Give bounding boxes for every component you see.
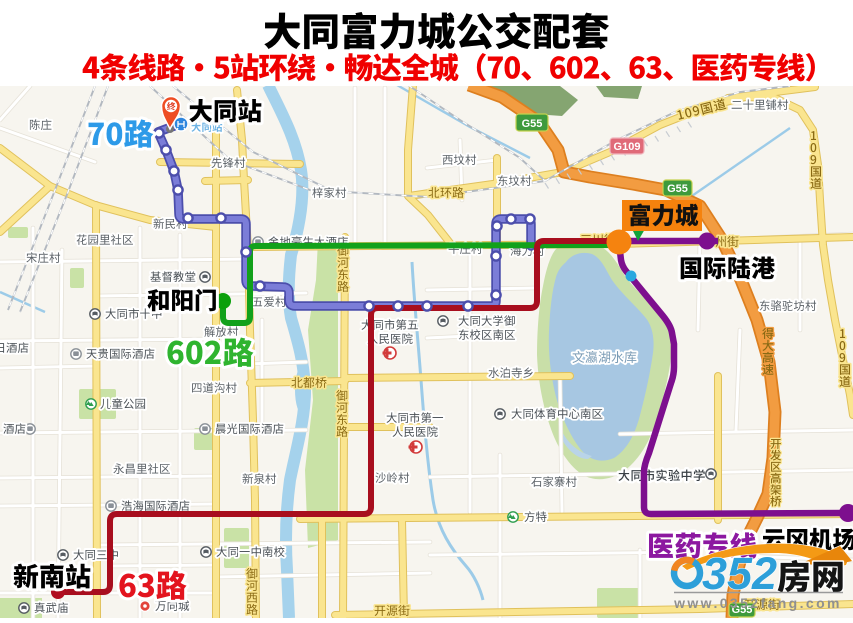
svg-text:www.0352fang.com: www.0352fang.com: [673, 595, 842, 611]
svg-text:G55: G55: [522, 118, 543, 130]
svg-text:352: 352: [702, 548, 777, 599]
svg-text:G109: G109: [614, 141, 641, 153]
svg-text:G55: G55: [667, 183, 688, 195]
